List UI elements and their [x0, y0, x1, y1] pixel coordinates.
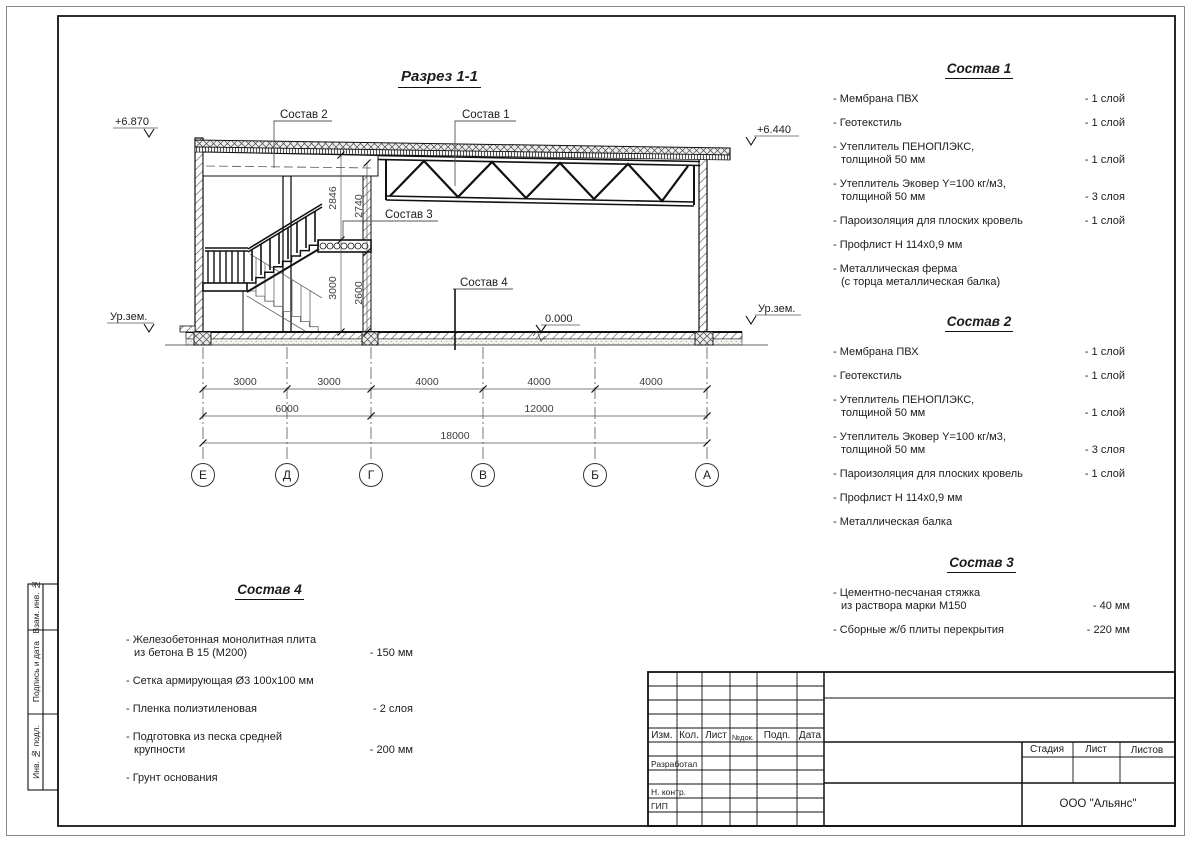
list-item: - Металлическая ферма (с торца металличе…: [833, 263, 1125, 289]
drawing-sheet: +6.870 +6.440 0.000 Ур.зем. Ур.зем.: [0, 0, 1191, 842]
list-item: - Утеплитель Эковер Y=100 кг/м3, толщино…: [833, 431, 1125, 457]
stamp-role-ncontrol: Н. контр.: [651, 787, 686, 798]
dim-3000-1: 3000: [233, 376, 257, 388]
floor-slab: [318, 240, 371, 252]
dim-4000-2: 4000: [527, 376, 551, 388]
list-item: - Пароизоляция для плоских кровель- 1 сл…: [833, 468, 1125, 481]
list-item: - Мембрана ПВХ- 1 слой: [833, 346, 1125, 359]
stamp-role-gip: ГИП: [651, 801, 668, 812]
drawing-title: Разрез 1-1: [398, 68, 481, 88]
list-item: - Подготовка из песка средней крупности-…: [126, 731, 413, 757]
composition-2: Состав 2 - Мембрана ПВХ- 1 слой - Геотек…: [833, 315, 1125, 529]
strip-vzam-inv: Взам. инв. №: [28, 584, 43, 630]
list-item: - Профлист Н 114х0,9 мм: [833, 239, 1125, 252]
ground-level-right-label: Ур.зем.: [758, 303, 795, 315]
stamp-header-ndok: №док.: [732, 732, 754, 743]
dim-3000-2: 3000: [317, 376, 341, 388]
composition-1-heading: Состав 1: [833, 62, 1125, 77]
stamp-role-developer: Разработал: [651, 759, 697, 770]
list-item: - Грунт основания: [126, 772, 413, 785]
list-item: - Утеплитель ПЕНОПЛЭКС, толщиной 50 мм- …: [833, 394, 1125, 420]
dim-3000v: 3000: [327, 276, 339, 300]
elevation-right: +6.440: [746, 124, 799, 145]
roof-truss: [378, 156, 700, 207]
stamp-header-stage: Стадия: [1030, 744, 1064, 755]
stamp-header-sheet: Лист: [1085, 744, 1107, 755]
list-item: - Сетка армирующая Ø3 100х100 мм: [126, 675, 413, 688]
dim-4000-3: 4000: [639, 376, 663, 388]
elevation-left: +6.870: [113, 116, 158, 137]
axis-A: А: [703, 468, 711, 482]
horizontal-dimensions: 3000 3000 4000 4000 4000 6000 12000 1800…: [192, 347, 719, 487]
dim-18000: 18000: [440, 430, 469, 442]
stamp-header-podp: Подп.: [764, 730, 791, 741]
strip-inv-podl: Инв. № подл.: [28, 714, 43, 790]
svg-text:Состав 4: Состав 4: [460, 277, 508, 289]
section-view: [165, 138, 768, 345]
axis-E: Е: [199, 468, 207, 482]
stamp-header-data: Дата: [799, 730, 821, 741]
svg-text:Состав 2: Состав 2: [280, 109, 328, 121]
svg-text:Состав 3: Состав 3: [385, 209, 433, 221]
list-item: - Мембрана ПВХ- 1 слой: [833, 93, 1125, 106]
dim-6000: 6000: [275, 403, 299, 415]
svg-text:Состав 1: Состав 1: [462, 109, 510, 121]
dim-12000: 12000: [524, 403, 553, 415]
composition-4-heading: Состав 4: [126, 583, 413, 598]
list-item: - Геотекстиль- 1 слой: [833, 370, 1125, 383]
list-item: - Пароизоляция для плоских кровель- 1 сл…: [833, 215, 1125, 228]
level-zero: 0.000: [536, 313, 580, 332]
composition-3-heading: Состав 3: [833, 556, 1130, 571]
axis-B: Б: [591, 468, 599, 482]
stamp-header-sheets: Листов: [1131, 745, 1164, 756]
list-item: - Сборные ж/б плиты перекрытия- 220 мм: [833, 624, 1130, 637]
staircase: [203, 204, 322, 334]
stamp-header-list: Лист: [705, 730, 727, 741]
list-item: - Цементно-песчаная стяжка из раствора м…: [833, 587, 1130, 613]
axis-V: В: [479, 468, 487, 482]
roof-beam: [203, 152, 378, 176]
composition-3: Состав 3 - Цементно-песчаная стяжка из р…: [833, 556, 1130, 637]
list-item: - Пленка полиэтиленовая- 2 слоя: [126, 703, 413, 716]
ground-level-left-label: Ур.зем.: [110, 311, 147, 323]
list-item: - Профлист Н 114х0,9 мм: [833, 492, 1125, 505]
axis-D: Д: [283, 468, 291, 482]
composition-1: Состав 1 - Мембрана ПВХ- 1 слой - Геотек…: [833, 62, 1125, 289]
stamp-header-kol: Кол.: [679, 730, 699, 741]
list-item: - Утеплитель Эковер Y=100 кг/м3, толщино…: [833, 178, 1125, 204]
composition-2-heading: Состав 2: [833, 315, 1125, 330]
ground-level-right: Ур.зем.: [746, 303, 801, 324]
axis-G: Г: [368, 468, 375, 482]
ground-slab: [165, 326, 768, 345]
strip-podpis-data: Подпись и дата: [28, 630, 43, 714]
dim-2740: 2740: [353, 194, 365, 218]
elevation-left-value: +6.870: [115, 116, 149, 128]
list-item: - Утеплитель ПЕНОПЛЭКС, толщиной 50 мм- …: [833, 141, 1125, 167]
composition-4: Состав 4 - Железобетонная монолитная пли…: [126, 583, 413, 785]
list-item: - Железобетонная монолитная плита из бет…: [126, 634, 413, 660]
axis-bubbles: Е Д Г В Б А: [192, 464, 719, 487]
list-item: - Геотекстиль- 1 слой: [833, 117, 1125, 130]
stamp-header-izm: Изм.: [651, 730, 672, 741]
dim-2846: 2846: [327, 186, 339, 210]
stamp-company-name: ООО "Альянс": [1060, 799, 1137, 810]
list-item: - Металлическая балка: [833, 516, 1125, 529]
level-zero-value: 0.000: [545, 313, 573, 325]
elevation-right-value: +6.440: [757, 124, 791, 136]
dim-4000-1: 4000: [415, 376, 439, 388]
dim-2600: 2600: [353, 281, 365, 305]
ground-level-left: Ур.зем.: [107, 311, 154, 332]
